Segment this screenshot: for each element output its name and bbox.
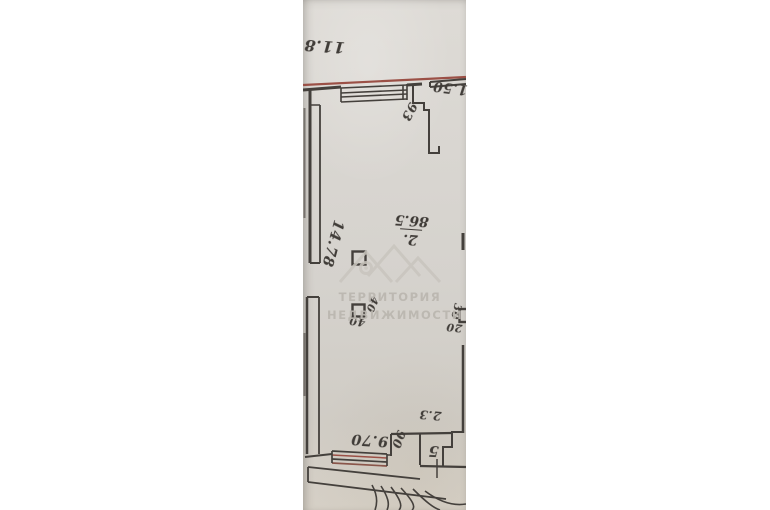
bottom-window xyxy=(332,451,387,466)
column-symbol-center xyxy=(353,252,366,265)
dimension-label-closet: 2.3 xyxy=(419,408,442,422)
top-wall-right xyxy=(407,84,422,85)
dimension-label-entry: 1.50 xyxy=(432,78,468,96)
dimension-label-top: 11.8 xyxy=(303,37,345,56)
photo-of-floor-plan: 11.8 1.50 93 14.78 2. 86.5 40 40 30 20 9… xyxy=(0,0,770,510)
entrance-step-arcs xyxy=(372,485,466,510)
dimension-label-bottom: 9.70 xyxy=(351,431,389,448)
bottom-sill xyxy=(305,454,332,457)
outer-plinth xyxy=(308,467,446,499)
room-area: 86.5 xyxy=(392,211,431,230)
edge-column-size-label-bottom: 20 xyxy=(445,321,462,334)
entry-door-jamb xyxy=(413,85,439,153)
column-size-label-bottom: 40 xyxy=(348,315,366,328)
closet-number-label: 5 xyxy=(428,443,440,459)
room-number-and-area: 2. 86.5 xyxy=(391,211,432,252)
room-number: 2. xyxy=(399,228,422,247)
top-window xyxy=(341,84,407,102)
